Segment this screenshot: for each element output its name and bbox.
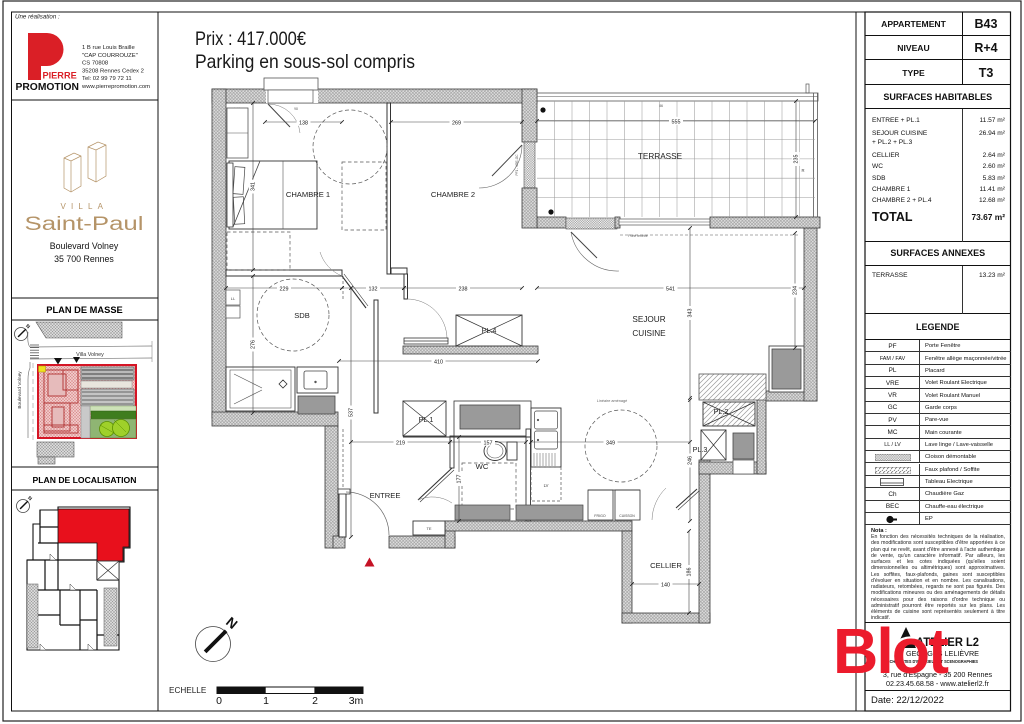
svg-text:Linéaire aménagé: Linéaire aménagé bbox=[597, 399, 627, 403]
svg-text:35 700 Rennes: 35 700 Rennes bbox=[54, 254, 114, 264]
svg-text:Villa Volney: Villa Volney bbox=[76, 352, 104, 358]
svg-text:349: 349 bbox=[606, 440, 615, 446]
svg-text:SDB: SDB bbox=[294, 311, 310, 320]
svg-text:3m: 3m bbox=[349, 695, 364, 707]
svg-text:410: 410 bbox=[434, 359, 443, 365]
svg-text:Prix : 417.000€: Prix : 417.000€ bbox=[195, 29, 306, 50]
svg-text:PL.2: PL.2 bbox=[714, 407, 729, 416]
svg-text:177: 177 bbox=[456, 475, 462, 484]
svg-text:1: 1 bbox=[263, 695, 269, 707]
svg-text:PLAN DE LOCALISATION: PLAN DE LOCALISATION bbox=[33, 475, 137, 485]
svg-text:ECHELLE: ECHELLE bbox=[169, 686, 207, 695]
svg-text:TE: TE bbox=[426, 526, 431, 531]
svg-text:555: 555 bbox=[672, 119, 681, 125]
svg-text:PIERRE: PIERRE bbox=[43, 71, 77, 81]
svg-text:PL.1: PL.1 bbox=[419, 415, 434, 424]
svg-text:R: R bbox=[801, 168, 804, 173]
svg-text:SEJOUR: SEJOUR bbox=[632, 315, 665, 324]
svg-text:246: 246 bbox=[687, 456, 693, 465]
svg-text:98: 98 bbox=[294, 107, 298, 111]
svg-text:0: 0 bbox=[216, 695, 222, 707]
svg-text:234: 234 bbox=[792, 286, 798, 295]
svg-text:PL.3: PL.3 bbox=[693, 445, 708, 454]
svg-text:Boulevard Volney: Boulevard Volney bbox=[17, 371, 23, 409]
svg-text:269: 269 bbox=[452, 120, 461, 126]
svg-text:276: 276 bbox=[250, 340, 256, 349]
svg-text:186: 186 bbox=[686, 568, 692, 577]
svg-text:www.pierrepromotion.com: www.pierrepromotion.com bbox=[81, 84, 150, 90]
svg-text:FRIGO: FRIGO bbox=[594, 514, 606, 518]
svg-text:Tel: 02 99 79 72 11: Tel: 02 99 79 72 11 bbox=[82, 76, 132, 82]
svg-text:CS 70808: CS 70808 bbox=[82, 61, 109, 67]
svg-text:PF1 - VRE-GC: PF1 - VRE-GC bbox=[515, 154, 519, 176]
svg-text:PL.4: PL.4 bbox=[482, 326, 497, 335]
svg-text:LV: LV bbox=[544, 483, 549, 488]
svg-text:140: 140 bbox=[661, 582, 670, 588]
svg-text:CUISSON: CUISSON bbox=[619, 514, 635, 518]
svg-text:235: 235 bbox=[793, 155, 799, 164]
svg-text:Parking en sous-sol compris: Parking en sous-sol compris bbox=[195, 51, 415, 73]
svg-text:PLAN DE MASSE: PLAN DE MASSE bbox=[46, 305, 122, 315]
svg-text:Une réalisation :: Une réalisation : bbox=[15, 14, 60, 21]
svg-text:"CAP COURROUZE": "CAP COURROUZE" bbox=[82, 53, 138, 59]
svg-text:CHAMBRE 2: CHAMBRE 2 bbox=[431, 190, 475, 199]
svg-text:2: 2 bbox=[312, 695, 318, 707]
svg-text:537: 537 bbox=[348, 408, 354, 417]
svg-text:Saint-Paul: Saint-Paul bbox=[25, 214, 144, 235]
svg-text:PROMOTION: PROMOTION bbox=[16, 82, 80, 93]
svg-text:35208 Rennes Cedex 2: 35208 Rennes Cedex 2 bbox=[82, 68, 144, 74]
svg-text:541: 541 bbox=[666, 286, 675, 292]
svg-text:TERRASSE: TERRASSE bbox=[638, 152, 683, 161]
svg-text:CHAMBRE 1: CHAMBRE 1 bbox=[286, 190, 330, 199]
svg-text:N: N bbox=[223, 614, 240, 632]
svg-text:341: 341 bbox=[250, 182, 256, 191]
svg-text:Porte fenêtre: Porte fenêtre bbox=[628, 234, 648, 238]
svg-text:138: 138 bbox=[299, 120, 308, 126]
svg-text:CELLIER: CELLIER bbox=[650, 561, 682, 570]
svg-text:229: 229 bbox=[280, 286, 289, 292]
svg-text:157: 157 bbox=[484, 440, 493, 446]
svg-text:VILLA: VILLA bbox=[61, 202, 108, 211]
svg-text:343: 343 bbox=[687, 309, 693, 318]
svg-text:238: 238 bbox=[459, 286, 468, 292]
svg-text:LL: LL bbox=[231, 296, 236, 301]
svg-text:ENTREE: ENTREE bbox=[370, 491, 401, 500]
svg-text:1 B rue Louis Braille: 1 B rue Louis Braille bbox=[82, 45, 135, 51]
svg-text:219: 219 bbox=[396, 440, 405, 446]
svg-text:WC: WC bbox=[476, 462, 489, 471]
svg-text:CUISINE: CUISINE bbox=[632, 329, 666, 338]
svg-text:Boulevard Volney: Boulevard Volney bbox=[50, 241, 119, 251]
svg-text:132: 132 bbox=[369, 286, 378, 292]
